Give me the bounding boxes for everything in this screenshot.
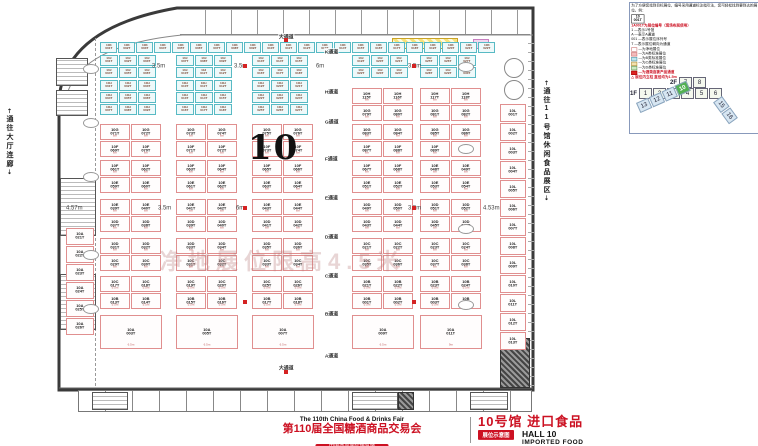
booth: 10B 001T5.5m xyxy=(352,293,382,309)
booth: 10B 002T5.5m xyxy=(383,293,413,309)
booth: 10H 006T xyxy=(138,92,156,103)
booth-size: 6m xyxy=(260,171,274,174)
booth-size: 6m xyxy=(108,266,122,269)
booth: 10G 086T6m xyxy=(451,124,481,140)
booth: 10H 009T xyxy=(138,104,156,115)
booth-size: 6m xyxy=(108,152,122,155)
aisle-label: G通道 xyxy=(324,118,339,125)
booth-size: 6m xyxy=(428,266,442,269)
booth: 10K 021T xyxy=(460,42,477,53)
booth-size: 6m xyxy=(459,116,473,119)
booth: 10H 022T xyxy=(252,92,270,103)
legend-swatch-icon xyxy=(631,57,637,61)
booth-size: 5.5m xyxy=(215,287,229,290)
stair-block xyxy=(56,90,88,116)
booth-size: 6m xyxy=(391,116,405,119)
aisle-label: K通道 xyxy=(324,48,339,55)
booth: 10A 007T6.5m xyxy=(252,315,314,349)
hall-subtitle-en: IMPORTED FOOD xyxy=(522,439,583,446)
booth-size: 6m xyxy=(215,188,229,191)
arrow-up-icon: ⇡ xyxy=(6,108,12,115)
booth-size: 6m xyxy=(459,99,473,102)
booth-size: 6m xyxy=(360,188,374,191)
booth-size: 5.5m xyxy=(184,287,198,290)
door-oval-icon xyxy=(83,172,99,182)
booth: 10L 004T xyxy=(500,161,526,179)
booth: 10C 023T6m xyxy=(420,238,450,254)
aisle-label: F通道 xyxy=(324,155,338,162)
booth: 10K 002T xyxy=(118,42,135,53)
booth: 10H 117T6m xyxy=(420,88,450,104)
booth: 10H 007T xyxy=(100,104,118,115)
booth-size: 6m xyxy=(391,188,405,191)
plan-type-badge: 展位示意图 xyxy=(478,430,514,440)
booth: 10G 074T6m xyxy=(207,124,237,140)
booth: 10E 063T6m xyxy=(252,177,282,193)
booth: 10J 029T xyxy=(439,67,457,78)
aisle-label: A通道 xyxy=(324,352,339,359)
booth: 10J 020T xyxy=(371,55,389,66)
booth: 10J 016T xyxy=(252,67,270,78)
booth: 10D 043T6m xyxy=(352,216,382,232)
booth: 10L 012T xyxy=(500,313,526,331)
booth: 10F 061T6m xyxy=(100,160,130,176)
booth: 10D 045T6m xyxy=(420,216,450,232)
booth: 10E 054T6m xyxy=(451,177,481,193)
booth-size: 6m xyxy=(139,249,153,252)
booth-size: 5.5m xyxy=(215,304,229,307)
booth: 10D 049T6m xyxy=(352,199,382,215)
booth: 10F 070T6m xyxy=(131,141,161,157)
booth: 10B 003T5.5m xyxy=(420,293,450,309)
booth: 10J 001T xyxy=(100,55,118,66)
booth: 10J 021T xyxy=(390,55,408,66)
door-oval-icon xyxy=(458,224,474,234)
booth-size: 6m xyxy=(428,227,442,230)
booth-size: 6m xyxy=(215,227,229,230)
arrow-up-icon: ⇡ xyxy=(543,80,549,87)
fair-title-en: The 110th China Food & Drinks Fair xyxy=(244,416,461,423)
booth: 10H 025T xyxy=(252,104,270,115)
left-corridor-label: ⇡通往大厅连廊⇣ xyxy=(6,108,13,176)
hall-title-en: HALL 10 xyxy=(522,430,583,439)
booth: 10E 048T6m xyxy=(420,160,450,176)
booth: 10G 082T6m xyxy=(451,105,481,121)
booth: 10H 005T xyxy=(119,92,137,103)
stair-block xyxy=(352,392,398,410)
booth-size: 5.5m xyxy=(360,304,374,307)
booth: 10D 039T6m xyxy=(176,216,206,232)
booth: 10K 017T xyxy=(388,42,405,53)
legend-sample-booth: 10 001T xyxy=(631,14,644,23)
booth: 10L 009T xyxy=(500,256,526,274)
booth-size: 6m xyxy=(215,152,229,155)
booth: 10B 014T5.5m xyxy=(131,293,161,309)
booth: 10H 008T xyxy=(119,104,137,115)
booth: 10D 044T6m xyxy=(383,216,413,232)
booth-size: 6m xyxy=(260,210,274,213)
booth-size: 6.5m xyxy=(116,344,146,347)
booth-size: 5.5m xyxy=(459,287,473,290)
booth-size: 5.5m xyxy=(291,304,305,307)
booth: 10K 016T xyxy=(370,42,387,53)
booth-size: 5.5m xyxy=(139,304,153,307)
booth: 10J 008T xyxy=(195,55,213,66)
top-rooms-band xyxy=(180,10,530,35)
booth-size: 6.5m xyxy=(368,344,398,347)
booth: 10H 013T xyxy=(176,92,194,103)
booth: 10L 001T xyxy=(500,104,526,122)
booth: 10H 001T xyxy=(100,80,118,91)
booth-size: 6m xyxy=(428,116,442,119)
booth: 10E 043T6m xyxy=(252,199,282,215)
booth: 10L 011T xyxy=(500,294,526,312)
booth: 10K 006T xyxy=(190,42,207,53)
booth: 10H 023T xyxy=(271,92,289,103)
booth: 10D 038T6m xyxy=(131,216,161,232)
booth: 10D 042T6m xyxy=(283,216,313,232)
booth-size: 5.5m xyxy=(260,287,274,290)
booth: 10K 010T xyxy=(262,42,279,53)
booth-size: 6m xyxy=(184,188,198,191)
booth-size: 6m xyxy=(108,171,122,174)
booth-size: 6m xyxy=(459,210,473,213)
booth: 10G 081T6m xyxy=(420,105,450,121)
booth: 10A 026T xyxy=(66,318,94,335)
arrow-down-icon: ⇣ xyxy=(6,169,12,176)
booth: 10K 012T xyxy=(298,42,315,53)
booth-size: 6m xyxy=(139,210,153,213)
watermark-text: 净地展位限高4.5米 xyxy=(160,244,405,276)
booth: 10H 017T xyxy=(195,104,213,115)
booth-size: 6m xyxy=(459,188,473,191)
booth-size: 5.5m xyxy=(291,287,305,290)
booth: 10J 024T xyxy=(390,67,408,78)
booth: 10G 085T6m xyxy=(420,124,450,140)
aisle-width-label: 3.5m xyxy=(158,205,171,211)
pillar-marker xyxy=(284,38,288,42)
door-oval-icon xyxy=(83,304,99,314)
booth: 10A 011T9m xyxy=(420,315,482,349)
booth: 10D 040T6m xyxy=(207,216,237,232)
booth: 10C 017T5.5m xyxy=(100,276,130,292)
hall-title-cn: 10号馆 进口食品 xyxy=(478,415,583,429)
booth-size: 9m xyxy=(436,344,466,347)
booth: 10H 115T6m xyxy=(352,88,382,104)
booth: 10K 005T xyxy=(172,42,189,53)
booth: 10D 031T6m xyxy=(100,238,130,254)
title-block: The 110th China Food & Drinks Fair 第110届… xyxy=(0,414,758,446)
booth: 10J 019T xyxy=(352,55,370,66)
booth: 10F 089T6m xyxy=(420,141,450,157)
booth: 10C 038T6m xyxy=(451,255,481,271)
booth: 10J 025T xyxy=(420,55,438,66)
booth-size: 6m xyxy=(215,135,229,138)
booth-size: 5.5m xyxy=(391,304,405,307)
booth: 10F 069T6m xyxy=(100,141,130,157)
booth-size: 6m xyxy=(139,152,153,155)
booth-size: 6m xyxy=(139,188,153,191)
booth: 10J 007T xyxy=(176,55,194,66)
minimap-cell: 5 xyxy=(695,88,708,99)
booth-size: 5.5m xyxy=(428,304,442,307)
booth: 10H 027T xyxy=(290,104,308,115)
booth: 10G 071T6m xyxy=(100,124,130,140)
door-oval-icon xyxy=(458,62,474,72)
aisle-width-label: 4.53m xyxy=(483,205,500,211)
legend-swatch-list: —为净地展位—为A类标准展位—为B类标准展位—为C类标准展位—为D类标准展位—为… xyxy=(631,47,757,75)
minimap-annex-strip: 1516 xyxy=(713,96,738,124)
booth: 10K 011T xyxy=(280,42,297,53)
booth-size: 6m xyxy=(184,171,198,174)
pillar-marker xyxy=(243,64,247,68)
booth: 10A 023T xyxy=(66,264,94,281)
booth: 10E 061T6m xyxy=(176,177,206,193)
pillar-marker xyxy=(243,300,247,304)
booth: 10F 071T6m xyxy=(176,141,206,157)
booth-size: 5.5m xyxy=(360,287,374,290)
booth: 10E 064T6m xyxy=(283,177,313,193)
aisle-label: H通道 xyxy=(324,88,339,95)
booth: 10B 018T5.5m xyxy=(283,293,313,309)
booth-size: 6m xyxy=(184,210,198,213)
booth-size: 6m xyxy=(260,188,274,191)
minimap-cell: 8 xyxy=(693,77,706,88)
booth: 10D 037T6m xyxy=(100,216,130,232)
booth-size: 6m xyxy=(459,171,473,174)
booth: 10J 010T xyxy=(176,67,194,78)
booth: 10A 024T xyxy=(66,282,94,299)
booth: 10H 011T xyxy=(195,80,213,91)
booth-size: 6m xyxy=(391,171,405,174)
booth: 10J 002T xyxy=(119,55,137,66)
booth: 10B 015T5.5m xyxy=(176,293,206,309)
booth: 10B 024T5.5m xyxy=(451,276,481,292)
booth-size: 6m xyxy=(260,227,274,230)
stair-block xyxy=(92,392,128,410)
booth: 10E 059T6m xyxy=(100,177,130,193)
booth: 10L 002T xyxy=(500,123,526,141)
booth: 10E 051T6m xyxy=(352,177,382,193)
booth-size: 6m xyxy=(360,152,374,155)
door-oval-icon xyxy=(458,300,474,310)
booth: 10J 026T xyxy=(439,55,457,66)
booth: 10E 062T6m xyxy=(207,177,237,193)
booth: 10E 052T6m xyxy=(383,177,413,193)
fair-title-cn: 第110届全国糖酒商品交易会 xyxy=(238,423,466,435)
door-oval-icon xyxy=(83,118,99,128)
booth: 10F 062T6m xyxy=(131,160,161,176)
booth-size: 6m xyxy=(391,135,405,138)
booth: 10H 019T xyxy=(252,80,270,91)
booth: 10F 088T6m xyxy=(383,141,413,157)
booth: 10G 084T6m xyxy=(383,124,413,140)
booth: 10J 004T xyxy=(100,67,118,78)
booth: 10H 118T6m xyxy=(451,88,481,104)
booth-size: 6m xyxy=(459,266,473,269)
booth: 10J 012T xyxy=(214,67,232,78)
booth: 10K 008T xyxy=(226,42,243,53)
booth: 10A 003T6.5m xyxy=(100,315,162,349)
booth-size: 6m xyxy=(108,210,122,213)
booth: 10K 020T xyxy=(442,42,459,53)
booth: 10K 018T xyxy=(406,42,423,53)
booth-size: 6m xyxy=(108,188,122,191)
booth: 10J 022T xyxy=(352,67,370,78)
booth-size: 6m xyxy=(360,210,374,213)
booth: 10E 039T6m xyxy=(100,199,130,215)
booth-size: 6m xyxy=(215,210,229,213)
booth-size: 5.5m xyxy=(391,287,405,290)
booth-size: 6m xyxy=(391,99,405,102)
booth: 10B 022T5.5m xyxy=(383,276,413,292)
booth-size: 5.5m xyxy=(428,287,442,290)
legend-swatch-icon xyxy=(631,66,637,70)
booth-size: 6m xyxy=(360,99,374,102)
booth-size: 6m xyxy=(459,135,473,138)
booth: 10H 012T xyxy=(214,80,232,91)
legend-intro: 为了方便您找到目标展位，编号采用通道标注指引法，您可轻松找到要到达的展位。例： xyxy=(631,4,757,13)
booth: 10K 004T xyxy=(154,42,171,53)
stair-block xyxy=(56,58,88,86)
booth: 10C 018T5.5m xyxy=(131,276,161,292)
booth: 10B 016T5.5m xyxy=(207,293,237,309)
booth-size: 6m xyxy=(360,171,374,174)
booth-size: 6.5m xyxy=(268,344,298,347)
booth: 10B 013T5.5m xyxy=(100,293,130,309)
booth: 10D 051T6m xyxy=(420,199,450,215)
booth-size: 6m xyxy=(108,227,122,230)
booth: 10H 003T xyxy=(138,80,156,91)
booth-size: 6m xyxy=(184,227,198,230)
booth: 10H 014T xyxy=(195,92,213,103)
booth: 10E 042T6m xyxy=(207,199,237,215)
pillar-marker xyxy=(243,206,247,210)
booth: 10E 041T6m xyxy=(176,199,206,215)
aisle-label: E通道 xyxy=(324,194,339,201)
booth: 10H 116T6m xyxy=(383,88,413,104)
booth-size: 5.5m xyxy=(139,287,153,290)
booth: 10L 007T xyxy=(500,218,526,236)
booth: 10G 080T6m xyxy=(383,105,413,121)
legend-swatch-icon xyxy=(631,47,637,51)
booth-size: 6m xyxy=(291,210,305,213)
booth: 10F 063T6m xyxy=(176,160,206,176)
legend-swatch-icon xyxy=(631,52,637,56)
booth: 10H 018T xyxy=(214,104,232,115)
legend-sample-code: 001T xyxy=(634,19,642,23)
booth-size: 5.5m xyxy=(184,304,198,307)
booth: 10E 040T6m xyxy=(131,199,161,215)
right-corridor-label: ⇡通往11号馆休闲食品展区⇣ xyxy=(543,80,550,202)
booth: 10H 020T xyxy=(271,80,289,91)
booth: 10H 002T xyxy=(119,80,137,91)
booth-size: 5.5m xyxy=(260,304,274,307)
booth-size: 6m xyxy=(428,249,442,252)
booth: 10J 005T xyxy=(119,67,137,78)
fair-title-block: The 110th China Food & Drinks Fair 第110届… xyxy=(238,416,466,446)
booth: 10C 020T5.5m xyxy=(207,276,237,292)
booth: 10B 017T5.5m xyxy=(252,293,282,309)
door-oval-icon xyxy=(83,250,99,260)
revolving-door-icon xyxy=(504,58,524,78)
booth: 10C 030T6m xyxy=(131,255,161,271)
pillar-marker xyxy=(412,206,416,210)
booth-size: 6m xyxy=(428,135,442,138)
booth: 10G 079T6m xyxy=(352,105,382,121)
booth: 10K 001T xyxy=(100,42,117,53)
booth: 10H 004T xyxy=(100,92,118,103)
booth: 10L 003T xyxy=(500,142,526,160)
booth-size: 6m xyxy=(360,135,374,138)
booth: 10J 018T xyxy=(290,67,308,78)
booth: 10D 052T6m xyxy=(451,199,481,215)
booth: 10E 053T6m xyxy=(420,177,450,193)
floor-plan-page: 10K 001T10K 002T10K 003T10K 004T10K 005T… xyxy=(0,0,758,446)
booth: 10H 024T xyxy=(290,92,308,103)
booth-size: 6m xyxy=(291,171,305,174)
booth: 10K 015T xyxy=(352,42,369,53)
booth: 10H 010T xyxy=(176,80,194,91)
booth: 10D 041T6m xyxy=(252,216,282,232)
booth-size: 6m xyxy=(428,188,442,191)
door-oval-icon xyxy=(83,64,99,74)
booth: 10F 068T6m xyxy=(383,160,413,176)
booth-size: 6m xyxy=(108,135,122,138)
booth: 10A 005T6.5m xyxy=(176,315,238,349)
booth: 10E 049T6m xyxy=(451,160,481,176)
booth: 10L 013T xyxy=(500,332,526,350)
booth-size: 6m xyxy=(139,135,153,138)
booth-size: 6m xyxy=(291,227,305,230)
booth: 10L 006T xyxy=(500,199,526,217)
right-wall-ticks xyxy=(528,40,534,386)
booth: 10E 044T6m xyxy=(283,199,313,215)
booth: 10J 014T xyxy=(271,55,289,66)
door-oval-icon xyxy=(458,144,474,154)
booth: 10H 015T xyxy=(214,92,232,103)
booth-size: 6m xyxy=(184,152,198,155)
booth: 10H 016T xyxy=(176,104,194,115)
booth: 10C 037T6m xyxy=(420,255,450,271)
booth: 10G 072T6m xyxy=(131,124,161,140)
divider xyxy=(470,417,471,443)
booth: 10J 013T xyxy=(252,55,270,66)
minimap-floor-label: 1F xyxy=(630,91,637,97)
booth: 10K 007T xyxy=(208,42,225,53)
booth: 10A 009T6.5m xyxy=(352,315,414,349)
booth-size: 6m xyxy=(215,171,229,174)
booth: 10G 073T6m xyxy=(176,124,206,140)
aisle-label: B通道 xyxy=(324,310,339,317)
booth: 10F 072T6m xyxy=(207,141,237,157)
booth: 10K 003T xyxy=(136,42,153,53)
booth-size: 6m xyxy=(139,171,153,174)
booth: 10C 025T5.5m xyxy=(252,276,282,292)
booth-size: 6m xyxy=(428,152,442,155)
bottom-rooms-band xyxy=(78,390,532,412)
hall-location-minimap: 2F78 1F123456 13121110 1516 xyxy=(628,77,758,137)
booth-size: 5.5m xyxy=(108,287,122,290)
booth: 10L 010T xyxy=(500,275,526,293)
booth-size: 6m xyxy=(428,171,442,174)
booth: 10J 028T xyxy=(420,67,438,78)
booth-size: 6m xyxy=(108,249,122,252)
booth: 10C 019T5.5m xyxy=(176,276,206,292)
aisle-width-label: 6m xyxy=(316,63,324,69)
booth: 10F 087T6m xyxy=(352,141,382,157)
booth-size: 6m xyxy=(139,266,153,269)
